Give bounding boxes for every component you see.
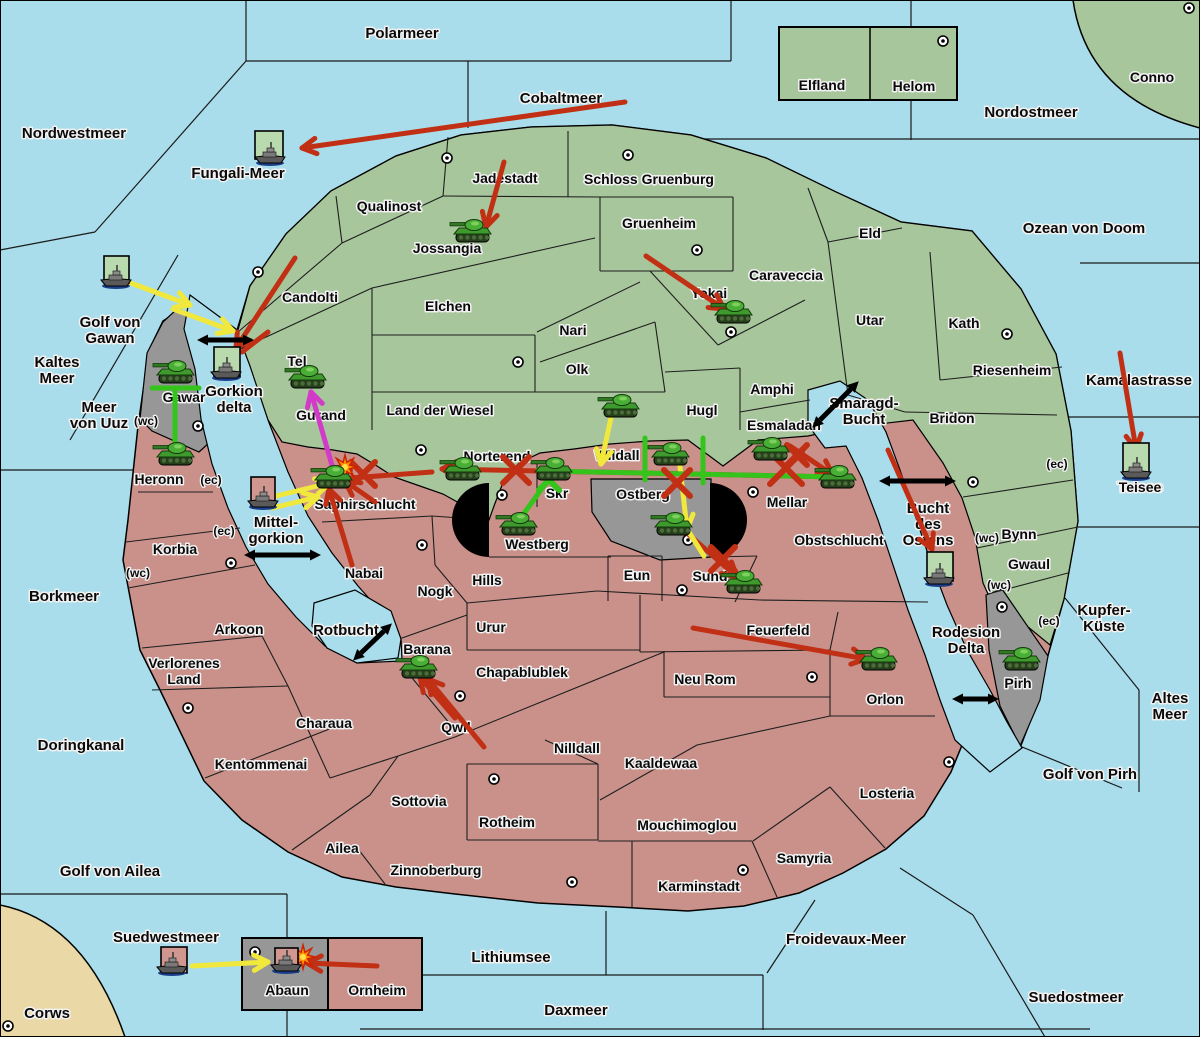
small-label: (wc) — [126, 566, 150, 580]
small-label: (ec) — [1046, 457, 1067, 471]
tank-wheel — [320, 381, 324, 385]
tank-wheel — [843, 481, 847, 485]
tank-turret-highlight — [1020, 650, 1028, 654]
land-label[interactable]: Hugl — [686, 402, 717, 418]
tank-turret-highlight — [417, 658, 425, 662]
tank-wheel — [850, 481, 854, 485]
sea-label-line[interactable]: Kupfer- — [1077, 602, 1130, 619]
tank-barrel — [153, 364, 168, 367]
ship-deck — [1129, 467, 1142, 472]
land-label[interactable]: Pirh — [1004, 675, 1031, 691]
tank-wheel — [468, 473, 472, 477]
land-label[interactable]: Teisee — [1119, 479, 1162, 495]
city-dot-center — [516, 360, 520, 364]
tank-wheel — [679, 528, 683, 532]
land-label[interactable]: Nari — [559, 322, 586, 338]
city-dot-center — [971, 480, 975, 484]
land-label[interactable]: Samyria — [777, 850, 832, 866]
land-label[interactable]: Gawar — [163, 389, 206, 405]
land-label[interactable]: Nabai — [345, 565, 383, 581]
tank-wheel — [607, 410, 611, 414]
sea-label[interactable]: Rotbucht — [313, 622, 379, 639]
sea-label[interactable]: Kamalastrasse — [1086, 372, 1192, 389]
land-label-line[interactable]: Land — [167, 671, 200, 687]
tank-wheel — [746, 316, 750, 320]
sea-label-line[interactable]: Golf von — [80, 314, 141, 331]
land-label[interactable]: Heronn — [135, 471, 184, 487]
sea-label-line[interactable]: Meer — [1152, 706, 1187, 723]
sea-label[interactable]: Corws — [24, 1005, 70, 1022]
tank-wheel — [455, 473, 459, 477]
sea-label[interactable]: Nordwestmeer — [22, 125, 126, 142]
game-map-stage: PolarmeerNordwestmeerCobaltmeerFungali-M… — [0, 0, 1200, 1037]
tank-turret-highlight — [732, 303, 740, 307]
tank-barrel — [856, 651, 871, 654]
tank-wheel — [626, 410, 630, 414]
tank-wheel — [346, 481, 350, 485]
land-label[interactable]: Obstschlucht — [794, 532, 884, 548]
land-label[interactable]: Land der Wiesel — [386, 402, 493, 418]
land-label[interactable]: Rotheim — [479, 814, 535, 830]
tank-barrel — [999, 651, 1014, 654]
city-dot-center — [229, 561, 233, 565]
ship-deck — [279, 960, 292, 965]
tank-wheel — [168, 458, 172, 462]
tank-wheel — [1014, 663, 1018, 667]
land-label[interactable]: Conno — [1130, 69, 1174, 85]
ship-deck — [165, 962, 178, 967]
tank-wheel — [726, 316, 730, 320]
land-label[interactable]: Urur — [476, 619, 506, 635]
sea-label-line[interactable]: Küste — [1083, 618, 1125, 635]
ship-deck — [109, 275, 122, 280]
land-label[interactable]: Kaaldewaa — [625, 755, 698, 771]
city-dot-center — [1005, 332, 1009, 336]
land-label[interactable]: Karminstadt — [658, 878, 740, 894]
tank-wheel — [320, 481, 324, 485]
sea-label-line[interactable]: von Uuz — [70, 415, 128, 432]
sea-label[interactable]: Cobaltmeer — [520, 90, 603, 107]
tank-wheel — [307, 381, 311, 385]
tank-wheel — [670, 458, 674, 462]
tank-wheel — [830, 481, 834, 485]
tank-barrel — [721, 574, 736, 577]
land-label[interactable]: Charaua — [296, 715, 352, 731]
ship-superstructure — [267, 148, 274, 152]
land-label[interactable]: Riesenheim — [973, 362, 1052, 378]
tank-wheel — [770, 453, 774, 457]
sea-label[interactable]: Suedwestmeer — [113, 929, 219, 946]
tank-turret-highlight — [619, 397, 627, 401]
sea-label[interactable]: Golf vonGawan — [80, 314, 141, 347]
tank-turret-highlight — [742, 573, 750, 577]
city-dot-center — [256, 270, 260, 274]
city-dot-center — [186, 706, 190, 710]
red-arrow — [307, 963, 377, 966]
tank-wheel — [783, 453, 787, 457]
city-dot-center — [729, 330, 733, 334]
land-label[interactable]: Schloss Gruenburg — [584, 171, 714, 187]
tank-barrel — [598, 398, 613, 401]
tank-wheel — [518, 528, 522, 532]
tank-wheel — [891, 663, 895, 667]
tank-barrel — [450, 223, 465, 226]
tank-wheel — [559, 473, 563, 477]
land-label[interactable]: Westberg — [505, 536, 569, 552]
land-label[interactable]: Eun — [624, 567, 650, 583]
land-label[interactable]: Korbia — [153, 541, 198, 557]
city-dot-center — [695, 248, 699, 252]
city-dot-center — [420, 543, 424, 547]
tank-barrel — [651, 516, 666, 519]
tank-wheel — [749, 586, 753, 590]
tank-turret-highlight — [306, 368, 314, 372]
land-label[interactable]: Arkoon — [215, 621, 264, 637]
tank-wheel — [720, 316, 724, 320]
tank-wheel — [175, 458, 179, 462]
city-dot-center — [419, 448, 423, 452]
land-label[interactable]: Candolti — [282, 289, 338, 305]
tank-wheel — [878, 663, 882, 667]
city-dot-center — [1187, 6, 1191, 10]
city-dot-center — [941, 39, 945, 43]
tank-wheel — [676, 458, 680, 462]
small-label: (wc) — [134, 414, 158, 428]
tank-wheel — [733, 316, 737, 320]
small-label: (wc) — [975, 531, 999, 545]
city-dot-center — [500, 493, 504, 497]
sea-label[interactable]: Nordostmeer — [984, 104, 1078, 121]
sea-label[interactable]: Polarmeer — [365, 25, 439, 42]
land-label[interactable]: Orlon — [866, 691, 903, 707]
land-label[interactable]: Bynn — [1002, 526, 1037, 542]
tank-barrel — [648, 446, 663, 449]
tank-wheel — [540, 473, 544, 477]
tank-wheel — [756, 586, 760, 590]
land-label[interactable]: Amphi — [750, 381, 794, 397]
tank-wheel — [686, 528, 690, 532]
land-label[interactable]: Neu Rom — [674, 671, 735, 687]
city-dot-center — [810, 675, 814, 679]
land-label[interactable]: Elfland — [799, 77, 846, 93]
tank-wheel — [418, 671, 422, 675]
small-label: (ec) — [213, 524, 234, 538]
tank-wheel — [743, 586, 747, 590]
tank-wheel — [633, 410, 637, 414]
tank-turret-highlight — [672, 515, 680, 519]
land-label[interactable]: Ornheim — [348, 982, 406, 998]
explosion-core — [300, 954, 306, 960]
land-label[interactable]: Zinnoberburg — [391, 862, 482, 878]
tank-wheel — [485, 235, 489, 239]
land-label[interactable]: Gwaul — [1008, 556, 1050, 572]
tank-barrel — [531, 461, 546, 464]
tank-turret-highlight — [471, 222, 479, 226]
land-label[interactable]: Barana — [403, 641, 451, 657]
tank-wheel — [505, 528, 509, 532]
sea-label[interactable]: Suedostmeer — [1028, 989, 1123, 1006]
city-dot-center — [1000, 605, 1004, 609]
land-label[interactable]: Olk — [566, 361, 589, 377]
tank-wheel — [660, 528, 664, 532]
city-dot-center — [626, 153, 630, 157]
small-label: (wc) — [987, 578, 1011, 592]
tank-wheel — [313, 381, 317, 385]
tank-turret-highlight — [552, 460, 560, 464]
tank-wheel — [478, 235, 482, 239]
tank-wheel — [511, 528, 515, 532]
tank-wheel — [339, 481, 343, 485]
land-label[interactable]: Gruenheim — [622, 215, 696, 231]
tank-turret-highlight — [332, 468, 340, 472]
arrow-head — [217, 331, 233, 333]
ship-superstructure — [283, 956, 290, 960]
sea-label-line[interactable]: Gawan — [85, 330, 134, 347]
tank-wheel — [663, 458, 667, 462]
sea-label-line[interactable]: delta — [216, 399, 252, 416]
tank-wheel — [837, 481, 841, 485]
sea-label[interactable]: Doringkanal — [38, 737, 125, 754]
sea-label[interactable]: KaltesMeer — [34, 354, 79, 387]
tank-wheel — [162, 458, 166, 462]
tank-wheel — [188, 376, 192, 380]
ship-deck — [263, 152, 276, 157]
ship-deck — [256, 496, 269, 501]
sea-label[interactable]: Golf von Ailea — [60, 863, 161, 880]
tank-wheel — [776, 453, 780, 457]
tank-barrel — [496, 516, 511, 519]
land-label[interactable]: Caraveccia — [749, 267, 823, 283]
city-dot-center — [751, 490, 755, 494]
sea-label-line[interactable]: Mittel- — [254, 514, 298, 531]
tank-wheel — [566, 473, 570, 477]
tank-turret-highlight — [174, 445, 182, 449]
ship-superstructure — [113, 271, 120, 275]
tank-wheel — [162, 376, 166, 380]
tank-wheel — [300, 381, 304, 385]
tank-barrel — [711, 304, 726, 307]
land-label[interactable]: Sottovia — [391, 793, 446, 809]
ship-superstructure — [260, 492, 267, 496]
city-dot-center — [492, 777, 496, 781]
sea-label[interactable]: Daxmeer — [544, 1002, 608, 1019]
tank-wheel — [1027, 663, 1031, 667]
tank-wheel — [736, 586, 740, 590]
tank-wheel — [188, 458, 192, 462]
sea-label[interactable]: Golf von Pirh — [1043, 766, 1137, 783]
land-label[interactable]: Kentommenai — [215, 756, 308, 772]
land-label[interactable]: Helom — [893, 78, 936, 94]
sea-label[interactable]: Kupfer-Küste — [1077, 602, 1130, 635]
sea-label-line[interactable]: Altes — [1152, 690, 1189, 707]
tank-wheel — [431, 671, 435, 675]
city-dot-center — [686, 538, 690, 542]
land-label[interactable]: Mellar — [767, 494, 808, 510]
ship-superstructure — [936, 569, 943, 573]
tank-wheel — [411, 671, 415, 675]
tank-wheel — [462, 473, 466, 477]
tank-wheel — [657, 458, 661, 462]
land-label[interactable]: Nogk — [418, 583, 453, 599]
sea-label-line[interactable]: Meer — [39, 370, 74, 387]
tank-barrel — [153, 446, 168, 449]
tank-wheel — [168, 376, 172, 380]
tank-barrel — [748, 441, 763, 444]
sea-label-line[interactable]: Bucht — [843, 411, 886, 428]
tank-wheel — [175, 376, 179, 380]
sea-label-line[interactable]: Gorkion — [205, 383, 263, 400]
tank-wheel — [531, 528, 535, 532]
tank-turret-highlight — [877, 650, 885, 654]
land-label[interactable]: Jadestadt — [472, 170, 538, 186]
city-dot-center — [741, 868, 745, 872]
sea-label-line[interactable]: Delta — [948, 640, 985, 657]
war-map: PolarmeerNordwestmeerCobaltmeerFungali-M… — [0, 0, 1200, 1037]
sea-label-line[interactable]: gorkion — [249, 530, 304, 547]
tank-wheel — [472, 235, 476, 239]
tank-wheel — [405, 671, 409, 675]
land-label[interactable]: Kath — [948, 315, 979, 331]
sea-label[interactable]: Lithiumsee — [471, 949, 550, 966]
tank-wheel — [763, 453, 767, 457]
ship-superstructure — [223, 363, 230, 367]
sea-label[interactable]: Fungali-Meer — [191, 165, 285, 182]
ship-deck — [219, 367, 232, 372]
tank-turret-highlight — [517, 515, 525, 519]
land-label[interactable]: Hills — [472, 572, 502, 588]
land-label[interactable]: Chapablublek — [476, 664, 568, 680]
tank-wheel — [673, 528, 677, 532]
sea-label[interactable]: Mittel-gorkion — [249, 514, 304, 547]
ship-superstructure — [169, 958, 176, 962]
tank-barrel — [285, 369, 300, 372]
tank-wheel — [424, 671, 428, 675]
tank-wheel — [871, 663, 875, 667]
sea-label[interactable]: Borkmeer — [29, 588, 99, 605]
tank-wheel — [666, 528, 670, 532]
sea-label-line[interactable]: Rodesion — [932, 624, 1000, 641]
tank-wheel — [865, 663, 869, 667]
land-label[interactable]: Losteria — [860, 785, 915, 801]
tank-wheel — [1008, 663, 1012, 667]
tank-turret-highlight — [461, 460, 469, 464]
tank-barrel — [311, 469, 326, 472]
tank-wheel — [465, 235, 469, 239]
tank-wheel — [294, 381, 298, 385]
tank-wheel — [326, 481, 330, 485]
land-label[interactable]: Eld — [859, 225, 881, 241]
tank-wheel — [730, 586, 734, 590]
small-label: (ec) — [1038, 614, 1059, 628]
land-label[interactable]: Utar — [856, 312, 885, 328]
city-dot-center — [196, 424, 200, 428]
land-label[interactable]: Abaun — [265, 982, 309, 998]
city-dot-center — [570, 880, 574, 884]
tank-wheel — [181, 376, 185, 380]
tank-barrel — [396, 659, 411, 662]
tank-wheel — [739, 316, 743, 320]
tank-barrel — [815, 469, 830, 472]
tank-wheel — [1021, 663, 1025, 667]
tank-turret-highlight — [769, 440, 777, 444]
tank-barrel — [440, 461, 455, 464]
tank-wheel — [613, 410, 617, 414]
tank-wheel — [181, 458, 185, 462]
sea-label-line[interactable]: Meer — [81, 399, 116, 416]
land-label[interactable]: Bridon — [929, 410, 974, 426]
tank-wheel — [683, 458, 687, 462]
sea-label[interactable]: AltesMeer — [1152, 690, 1189, 723]
tank-wheel — [546, 473, 550, 477]
ship-superstructure — [1133, 463, 1140, 467]
land-label[interactable]: Mouchimoglou — [637, 817, 737, 833]
city-dot-center — [445, 156, 449, 160]
city-dot-center — [680, 588, 684, 592]
city-dot-center — [947, 760, 951, 764]
land-label[interactable]: Feuerfeld — [746, 622, 809, 638]
tank-wheel — [824, 481, 828, 485]
land-label[interactable]: Esmaladan — [747, 417, 821, 433]
city-dot-center — [6, 1024, 10, 1028]
tank-wheel — [553, 473, 557, 477]
sea-label[interactable]: Ozean von Doom — [1023, 220, 1146, 237]
tank-turret-highlight — [174, 363, 182, 367]
land-label[interactable]: Ailea — [325, 840, 359, 856]
sea-label-line[interactable]: Kaltes — [34, 354, 79, 371]
tank-wheel — [1034, 663, 1038, 667]
tank-wheel — [620, 410, 624, 414]
city-dot-center — [458, 694, 462, 698]
ship-deck — [932, 573, 945, 578]
tank-wheel — [333, 481, 337, 485]
arrow-head — [174, 305, 190, 307]
tank-wheel — [757, 453, 761, 457]
tank-turret-highlight — [669, 445, 677, 449]
tank-wheel — [524, 528, 528, 532]
tank-wheel — [884, 663, 888, 667]
tank-turret-highlight — [836, 468, 844, 472]
land-label[interactable]: Nilldall — [554, 740, 600, 756]
tank-wheel — [475, 473, 479, 477]
tank-wheel — [459, 235, 463, 239]
land-label[interactable]: Elchen — [425, 298, 471, 314]
land-label[interactable]: Qualinost — [357, 198, 422, 214]
tank-wheel — [449, 473, 453, 477]
box-ornheim[interactable] — [328, 938, 422, 1010]
small-label: (ec) — [200, 473, 221, 487]
land-label-line[interactable]: Verlorenes — [148, 655, 220, 671]
sea-label[interactable]: Froidevaux-Meer — [786, 931, 906, 948]
